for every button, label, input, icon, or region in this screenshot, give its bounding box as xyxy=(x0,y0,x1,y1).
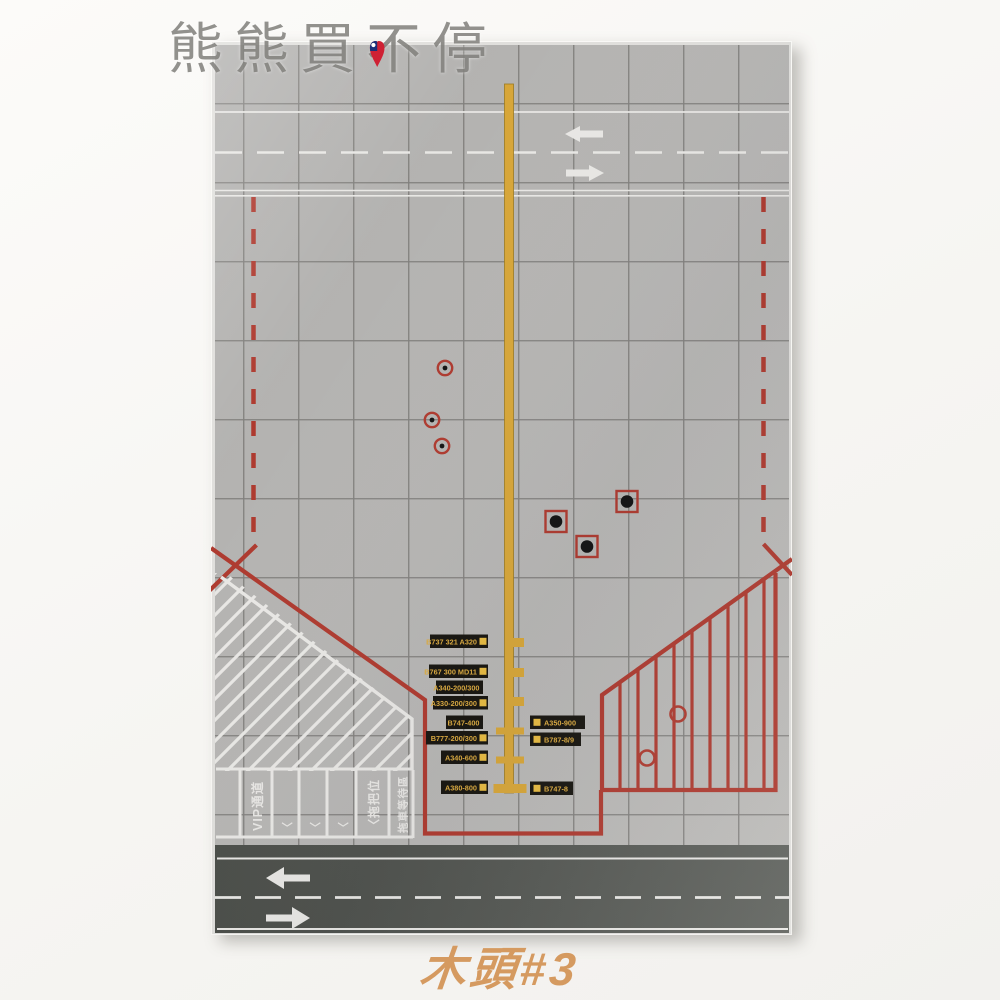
apron-diagram: VIP通道 〈 〈 〈 〈拖把位 拖車等待區 B737 321 A320 xyxy=(211,41,792,935)
airport-apron-mat: VIP通道 〈 〈 〈 〈拖把位 拖車等待區 B737 321 A320 xyxy=(211,41,792,935)
taiwan-flag-heart-icon xyxy=(369,38,386,75)
product-photo: VIP通道 〈 〈 〈 〈拖把位 拖車等待區 B737 321 A320 xyxy=(0,0,1000,1000)
watermark-text: 熊熊買不停 xyxy=(168,4,788,84)
lighting-overlay xyxy=(212,42,791,934)
caption-text: 木頭#3 xyxy=(0,933,1000,999)
